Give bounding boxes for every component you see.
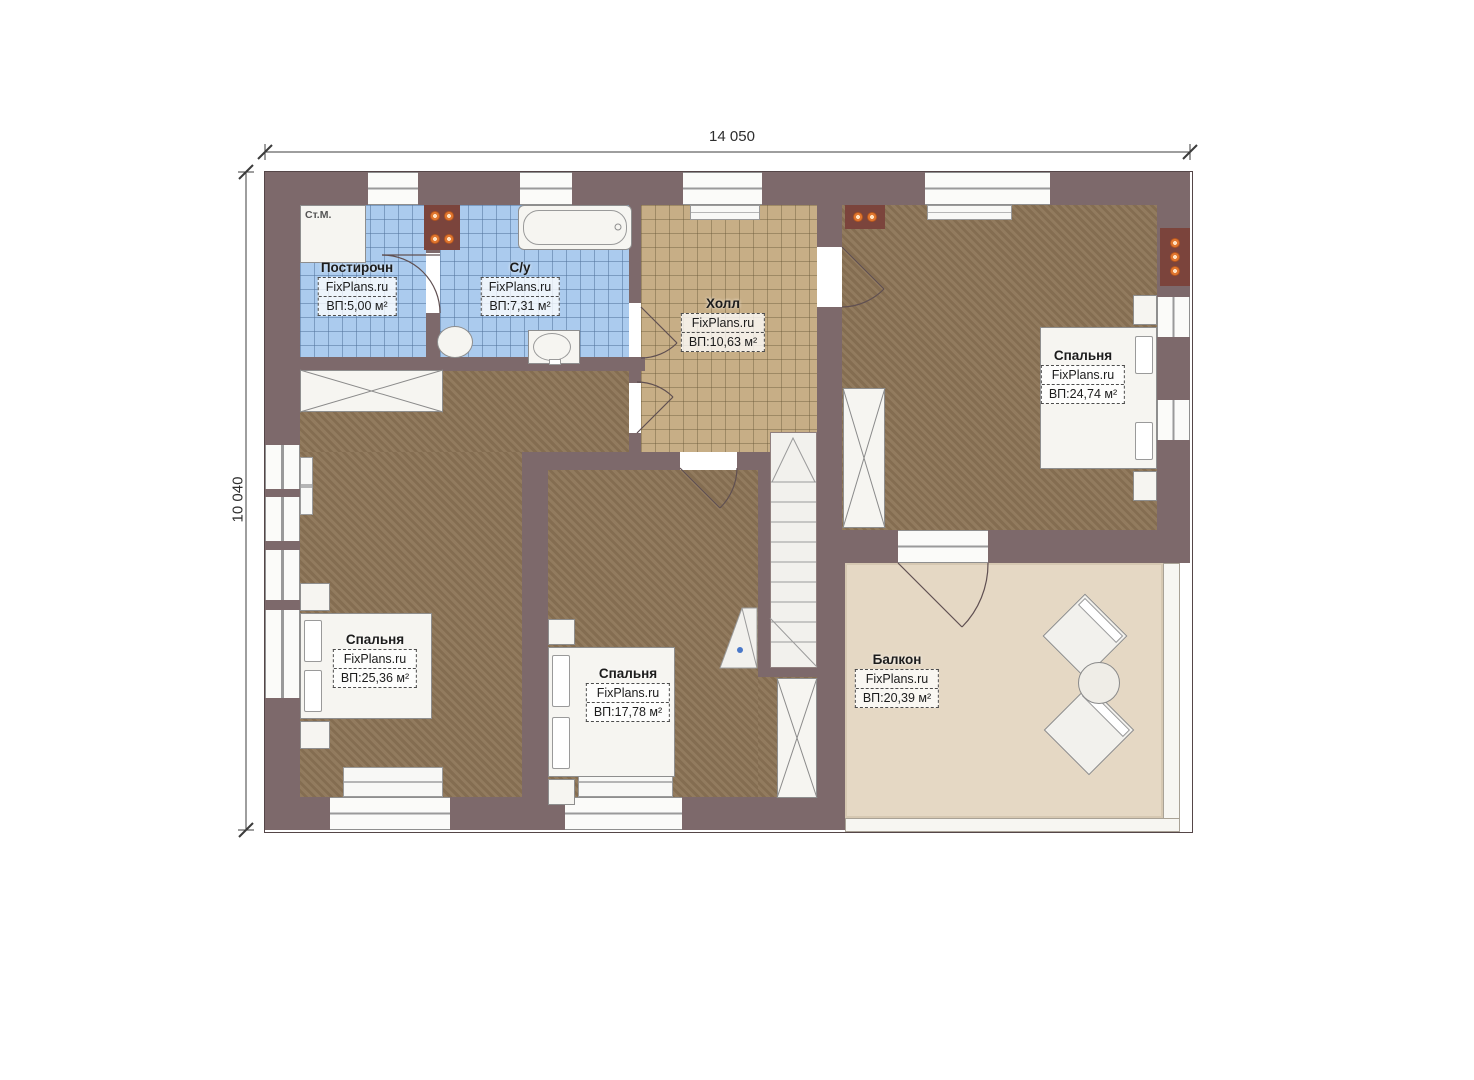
pillow [304, 620, 322, 662]
watermark: FixPlans.ru [319, 278, 396, 296]
floor-plan: Ст.М. [265, 172, 1190, 830]
window [683, 172, 762, 205]
window [265, 445, 300, 489]
room-title: Холл [706, 296, 740, 311]
toilet-bowl [533, 333, 571, 361]
watermark: FixPlans.ru [682, 314, 764, 332]
room-title: Спальня [346, 632, 404, 647]
pillow [1135, 336, 1153, 374]
room-label-bathroom: С/у FixPlans.ru ВП:7,31 м² [481, 260, 560, 316]
nightstand [300, 583, 330, 611]
nightstand [1133, 471, 1157, 501]
window [925, 172, 1050, 205]
room-label-laundry: Постирочн FixPlans.ru ВП:5,00 м² [318, 260, 397, 316]
lamp-dot-icon [867, 212, 877, 222]
radiator [927, 205, 1012, 220]
room-info-box: FixPlans.ru ВП:10,63 м² [681, 313, 765, 352]
room-title: Постирочн [321, 260, 393, 275]
pillow [552, 655, 570, 707]
room-info-box: FixPlans.ru ВП:20,39 м² [855, 669, 939, 708]
toilet-tank [549, 359, 561, 365]
balcony-railing-bottom [845, 818, 1180, 832]
room-area: ВП:10,63 м² [682, 332, 764, 351]
room-area: ВП:17,78 м² [587, 702, 669, 721]
balcony-door-opening [898, 530, 988, 563]
balcony-railing-right [1163, 563, 1180, 832]
wall-bedrooms-divider [522, 452, 548, 797]
radiator [343, 767, 443, 797]
room-info-box: FixPlans.ru ВП:24,74 м² [1041, 365, 1125, 404]
pillow [304, 670, 322, 712]
boiler-dot-icon [430, 234, 440, 244]
lamp-dot-icon [1170, 252, 1180, 262]
nightstand [1133, 295, 1157, 325]
window [265, 550, 300, 600]
lamp-dot-icon [1170, 266, 1180, 276]
wall-hall-left-b [629, 358, 641, 383]
wardrobe [300, 370, 443, 412]
wall-bedroom-balcony [845, 530, 1190, 563]
boiler-dot-icon [444, 211, 454, 221]
wardrobe [843, 388, 885, 528]
window [565, 797, 682, 830]
nightstand [548, 779, 575, 805]
window [1157, 297, 1190, 337]
lamp-dot-icon [1170, 238, 1180, 248]
wall-under-laundry [300, 357, 645, 371]
wardrobe [777, 678, 817, 798]
watermark: FixPlans.ru [482, 278, 559, 296]
staircase [770, 432, 817, 668]
nightstand [300, 721, 330, 749]
toilet [528, 330, 580, 364]
room-area: ВП:24,74 м² [1042, 384, 1124, 403]
room-title: Балкон [873, 652, 922, 667]
floor-plan-screenshot: 14 050 10 040 [0, 0, 1474, 1080]
lamp-dot-icon [853, 212, 863, 222]
window [330, 797, 450, 830]
window [265, 610, 300, 698]
pillow [552, 717, 570, 769]
wall-stairs-left [758, 452, 770, 677]
room-title: С/у [509, 260, 530, 275]
room-info-box: FixPlans.ru ВП:25,36 м² [333, 649, 417, 688]
watermark: FixPlans.ru [1042, 366, 1124, 384]
bathtub-basin [523, 210, 627, 245]
washing-machine-label: Ст.М. [305, 209, 331, 221]
window [368, 172, 418, 205]
boiler-dot-icon [430, 211, 440, 221]
boiler-icon [424, 205, 460, 250]
boiler-dot-icon [444, 234, 454, 244]
room-label-bedroom-middle: Спальня FixPlans.ru ВП:17,78 м² [586, 666, 670, 722]
wall-hall-right-b [817, 307, 842, 563]
wall-hall-right-a [817, 205, 842, 247]
room-label-hall: Холл FixPlans.ru ВП:10,63 м² [681, 296, 765, 352]
room-label-balcony: Балкон FixPlans.ru ВП:20,39 м² [855, 652, 939, 708]
room-info-box: FixPlans.ru ВП:17,78 м² [586, 683, 670, 722]
room-title: Спальня [599, 666, 657, 681]
washing-machine: Ст.М. [300, 205, 366, 263]
window [265, 497, 300, 541]
dimension-width-label: 14 050 [662, 128, 802, 145]
window [520, 172, 572, 205]
room-area: ВП:5,00 м² [319, 296, 396, 315]
room-area: ВП:20,39 м² [856, 688, 938, 707]
room-info-box: FixPlans.ru ВП:5,00 м² [318, 277, 397, 316]
room-area: ВП:25,36 м² [334, 668, 416, 687]
radiator [690, 205, 760, 220]
room-info-box: FixPlans.ru ВП:7,31 м² [481, 277, 560, 316]
pillow [1135, 422, 1153, 460]
wall-balcony-left [817, 530, 845, 830]
room-label-bedroom-top-right: Спальня FixPlans.ru ВП:24,74 м² [1041, 348, 1125, 404]
radiator [300, 457, 313, 515]
room-title: Спальня [1054, 348, 1112, 363]
sink [437, 326, 473, 358]
watermark: FixPlans.ru [587, 684, 669, 702]
watermark: FixPlans.ru [334, 650, 416, 668]
bathtub [518, 205, 632, 250]
window [1157, 400, 1190, 440]
dimension-height-label: 10 040 [230, 435, 247, 565]
wall-lamps-icon [845, 205, 885, 229]
room-label-bedroom-left: Спальня FixPlans.ru ВП:25,36 м² [333, 632, 417, 688]
watermark: FixPlans.ru [856, 670, 938, 688]
room-area: ВП:7,31 м² [482, 296, 559, 315]
nightstand [548, 619, 575, 645]
wall-lamps-icon [1160, 228, 1190, 286]
balcony-table [1078, 662, 1120, 704]
